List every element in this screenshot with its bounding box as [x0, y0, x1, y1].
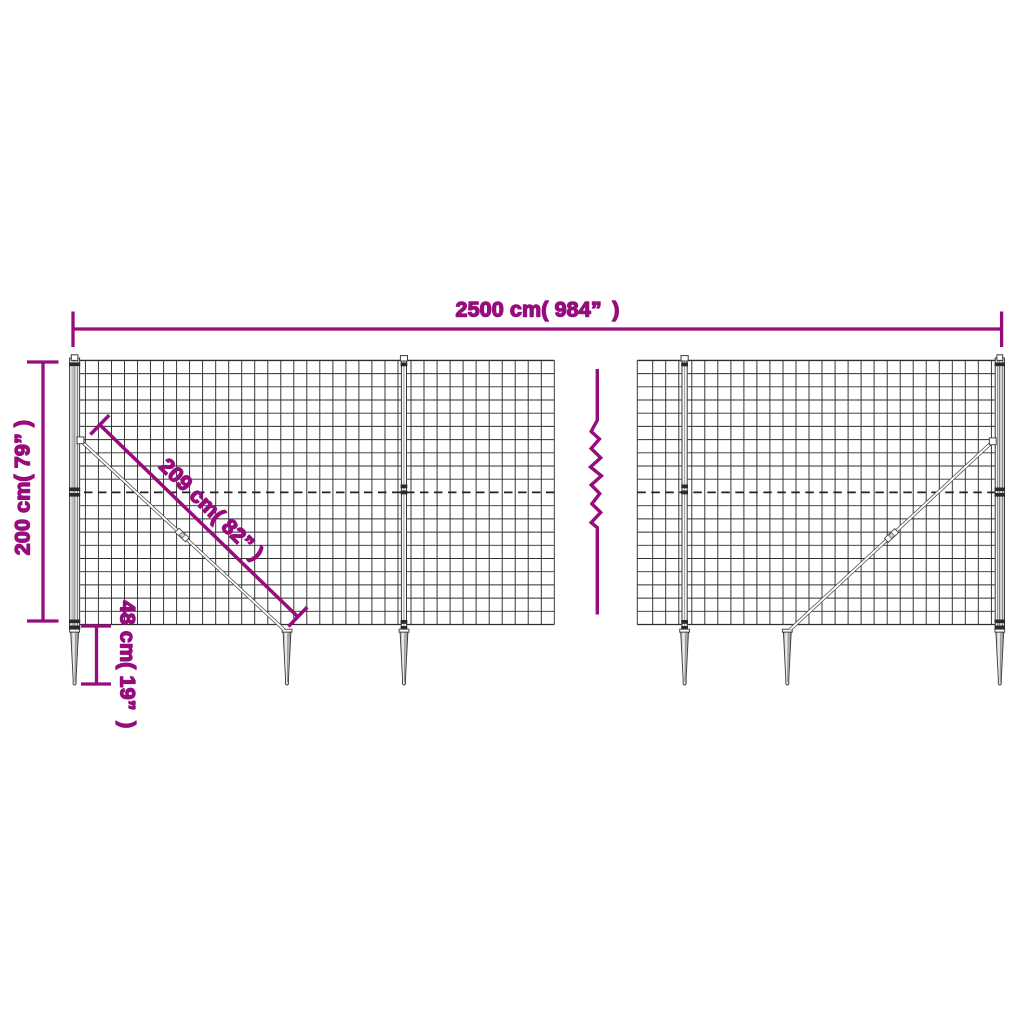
svg-text:200 cm( 79” ): 200 cm( 79” ) — [11, 420, 35, 555]
svg-text:48 cm( 19” ): 48 cm( 19” ) — [116, 601, 140, 729]
svg-text:2500 cm( 984” ): 2500 cm( 984” ) — [456, 298, 620, 322]
